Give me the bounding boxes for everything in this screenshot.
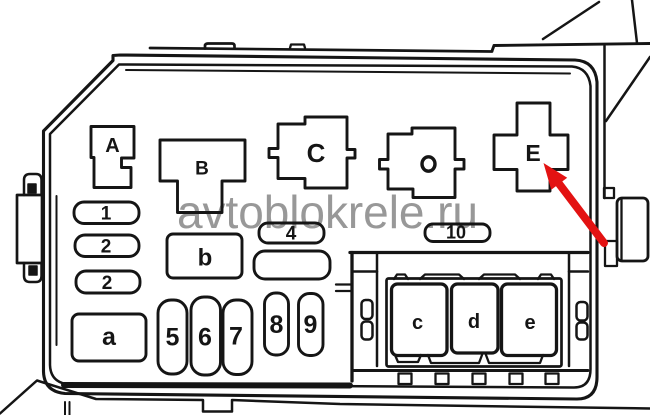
svg-text:1: 1 (101, 204, 112, 225)
svg-text:e: e (524, 312, 535, 334)
svg-text:10: 10 (446, 223, 466, 243)
svg-text:9: 9 (304, 311, 318, 339)
svg-text:2: 2 (102, 273, 113, 294)
svg-text:a: a (102, 323, 117, 351)
svg-text:2: 2 (101, 237, 112, 258)
svg-text:E: E (525, 140, 540, 166)
svg-text:5: 5 (166, 324, 180, 352)
svg-text:4: 4 (286, 224, 297, 245)
svg-text:d: d (468, 311, 480, 333)
svg-text:A: A (105, 135, 119, 157)
svg-text:B: B (195, 159, 209, 180)
svg-text:c: c (412, 312, 423, 334)
svg-text:b: b (198, 245, 213, 272)
svg-text:7: 7 (229, 323, 243, 351)
svg-text:8: 8 (270, 311, 284, 339)
svg-text:C: C (307, 138, 326, 168)
svg-text:6: 6 (198, 324, 212, 352)
